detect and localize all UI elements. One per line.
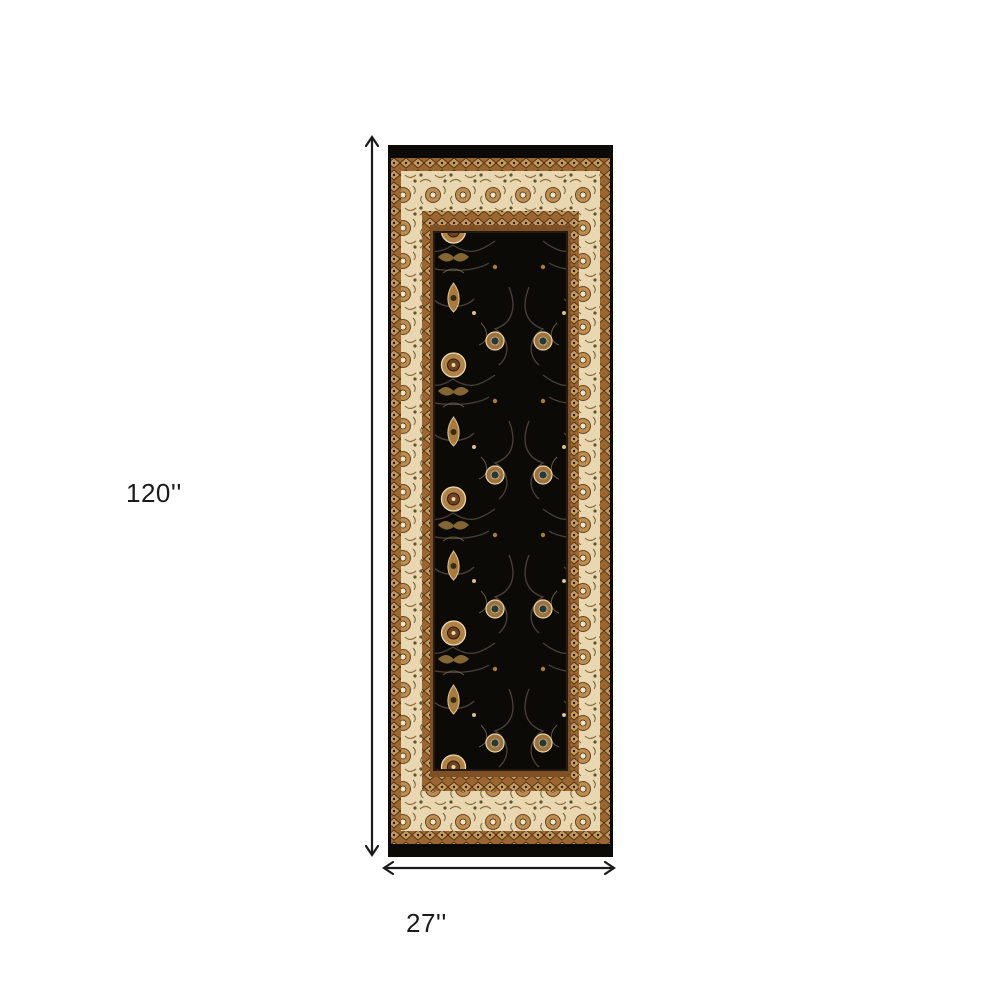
height-dimension-label: 120'' [126,480,182,506]
height-dimension-arrow-icon [363,133,381,860]
product-dimension-view: 120'' 27'' [0,0,1000,1000]
width-dimension-label: 27'' [406,910,447,936]
rug-artwork [388,145,613,857]
rug-image [388,145,613,857]
width-dimension-arrow-icon [380,859,618,877]
